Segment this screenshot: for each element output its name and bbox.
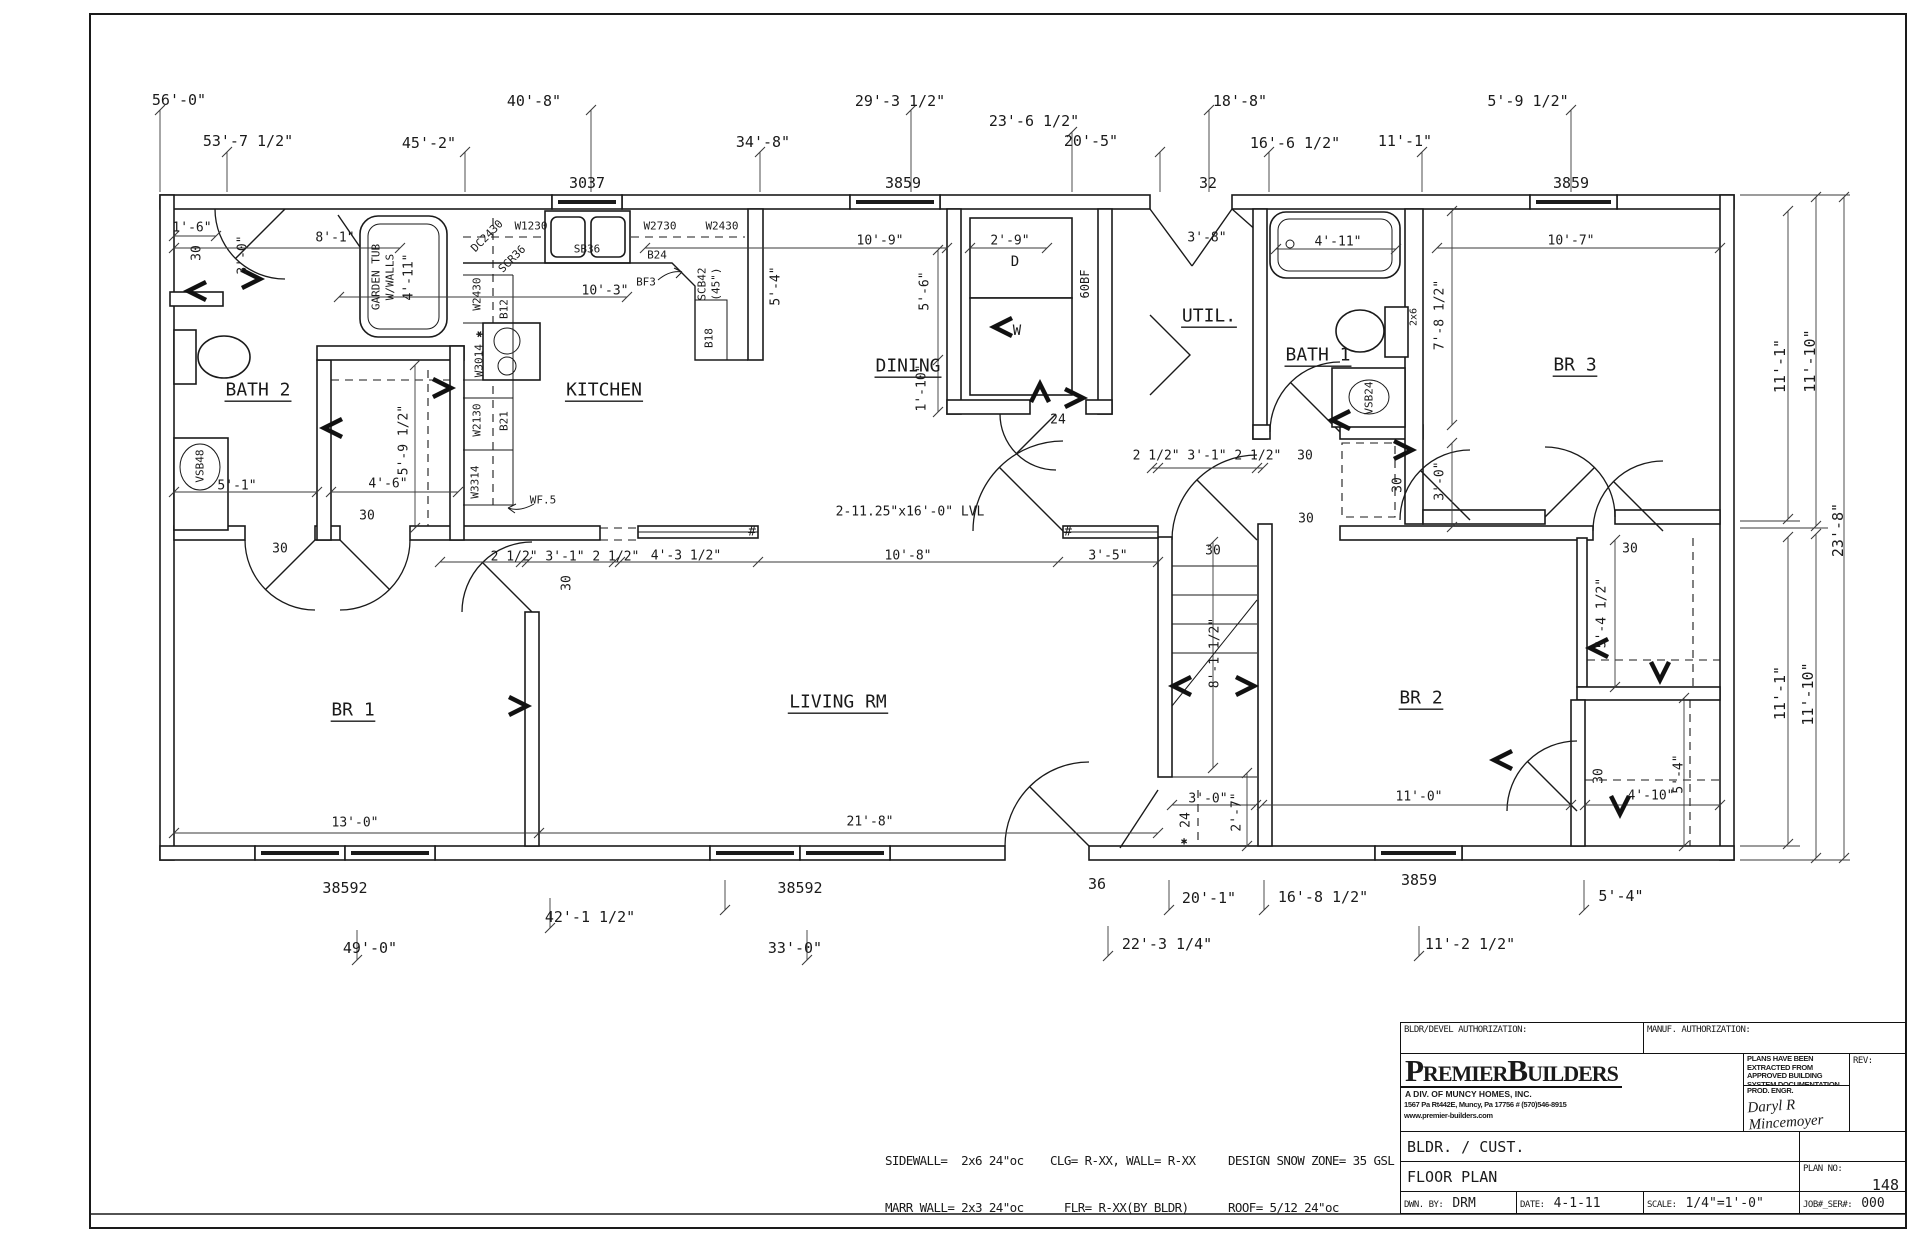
cabinet-label: BF3 — [636, 276, 656, 289]
dim-label: 5'-9 1/2" — [1487, 92, 1568, 110]
window-3859-br2 — [1375, 846, 1462, 860]
dim-label: 5'-9 1/2" — [397, 405, 412, 475]
room-label: BR 1 — [331, 700, 374, 721]
rev-cell: REV: — [1849, 1053, 1905, 1131]
dim-label: 4'-11" — [1315, 235, 1362, 250]
fixtures — [174, 211, 1408, 530]
dim-label: 3'-8" — [1187, 231, 1226, 246]
cabinet-label: SCB42 — [696, 267, 709, 300]
dim-label: 40'-8" — [507, 92, 561, 110]
plan-no-value: 148 — [1800, 1176, 1905, 1191]
dim-label: 5'-4 1/2" — [1595, 578, 1610, 648]
general-notes: SIDEWALL= 2x6 24"oc MARR WALL= 2x3 24"oc… — [885, 1122, 1024, 1242]
dim-label: 11'-10" — [1799, 662, 1817, 725]
note-line: FLR= R-XX(BY BLDR) — [1050, 1200, 1237, 1216]
dim-label: 42'-1 1/2" — [545, 908, 635, 926]
beam-hatch: # — [748, 525, 756, 540]
dwn-by-label: DWN. BY: — [1401, 1198, 1446, 1212]
dim-label: 11'-0" — [1396, 790, 1443, 805]
dim-label: 5'-4" — [1598, 887, 1643, 905]
dim-label: 34'-8" — [736, 133, 790, 151]
dim-label: 11'-1" — [1771, 339, 1789, 393]
dim-label: 2'-9" — [990, 234, 1029, 249]
general-notes: DESIGN SNOW ZONE= 35 GSL ROOF= 5/12 24"o… — [1228, 1122, 1394, 1242]
dim-label: 8'-1 1/2" — [1208, 618, 1223, 688]
company-address: 1567 Pa Rt442E, Muncy, Pa 17756 # (570)5… — [1401, 1100, 1743, 1111]
logo-builders: Builders — [1507, 1053, 1617, 1088]
appliance-label: D — [1011, 254, 1019, 270]
dim-label: 3'-5" — [1088, 549, 1127, 564]
room-label: BR 2 — [1399, 688, 1442, 709]
cabinet-label: B18 — [703, 328, 716, 348]
job-value: 000 — [1855, 1196, 1890, 1211]
dim-label: 30 — [359, 509, 375, 524]
fixture-label: VSB48 — [194, 449, 207, 482]
beam-label: 2-11.25"x16'-0" LVL — [836, 505, 985, 520]
company-website: www.premier-builders.com — [1401, 1111, 1743, 1122]
title-block: BLDR/DEVEL AUTHORIZATION: MANUF. AUTHORI… — [1400, 1022, 1906, 1214]
sheet-title-cell: FLOOR PLAN — [1401, 1161, 1799, 1191]
window-label: 3037 — [569, 174, 605, 192]
job-label: JOB#_SER#: — [1800, 1198, 1855, 1212]
window-label: 38592 — [322, 879, 367, 897]
scale-value: 1/4"=1'-0" — [1680, 1196, 1770, 1211]
window-38592-living — [710, 846, 890, 860]
job-cell: JOB#_SER#:000 — [1799, 1191, 1905, 1213]
dim-label: 5'-6" — [918, 271, 933, 310]
door-label: 36 — [1088, 875, 1106, 893]
note-line: DESIGN SNOW ZONE= 35 GSL — [1228, 1153, 1394, 1169]
window-label: 3859 — [1553, 174, 1589, 192]
dim-label: 7'-8 1/2" — [1433, 280, 1448, 350]
cabinet-label: W2430 — [471, 277, 484, 310]
door-label: 60BF — [1078, 270, 1092, 299]
dim-label: 11'-2 1/2" — [1425, 935, 1515, 953]
room-label: BATH 2 — [225, 380, 290, 401]
fixture-label: W/WALLS — [384, 254, 397, 300]
dim-label: 30 — [1592, 768, 1607, 784]
cabinet-label: W2430 — [705, 220, 738, 233]
cabinet-label: (45") — [710, 267, 723, 300]
window-3037 — [552, 195, 622, 209]
cabinet-label: SCR36 — [496, 243, 529, 276]
blank-cell — [1799, 1131, 1905, 1161]
dim-label: 11'-1" — [1771, 666, 1789, 720]
cabinet-label: DC2430 — [468, 217, 505, 254]
dim-label: 16'-6 1/2" — [1250, 134, 1340, 152]
cabinet-label: W3014 ✱ — [473, 330, 486, 377]
dim-label: 30 — [272, 542, 288, 557]
plan-no-label: PLAN NO: — [1800, 1162, 1905, 1176]
logo-cell: PremierBuilders A DIV. OF MUNCY HOMES, I… — [1401, 1053, 1743, 1131]
fixture-label: GARDEN TUB — [370, 244, 383, 311]
room-label: LIVING RM — [789, 692, 887, 713]
logo-premier: Premier — [1405, 1053, 1507, 1088]
dim-label: 2 1/2" 3'-1" 2 1/2" — [491, 550, 640, 565]
dim-label: 5'-4" — [1672, 754, 1687, 793]
dim-label: 45'-2" — [402, 134, 456, 152]
beam-hatch: # — [1064, 525, 1072, 540]
cabinet-label: W1230 — [514, 220, 547, 233]
dim-label: 10'-3" — [582, 284, 629, 299]
dim-label: 2 1/2" 3'-1" 2 1/2" — [1133, 449, 1282, 464]
wall-label: 2x6 — [1409, 308, 1420, 326]
general-notes: CLG= R-XX, WALL= R-XX FLR= R-XX(BY BLDR)… — [1050, 1122, 1237, 1242]
window-3859-dining — [850, 195, 940, 209]
cabinet-label: B24 — [647, 249, 667, 262]
note-line: SIDEWALL= 2x6 24"oc — [885, 1153, 1024, 1169]
dim-label: 30 — [1391, 477, 1406, 493]
cabinet-label: W2130 — [471, 403, 484, 436]
window-label: 3859 — [1401, 871, 1437, 889]
dwn-by-value: DRM — [1446, 1196, 1481, 1211]
dim-label: 13'-0" — [332, 816, 379, 831]
dim-label: 3'-0" — [1433, 461, 1448, 500]
bf3-arrow — [658, 268, 682, 280]
fixture-label: VSB24 — [1363, 381, 1376, 414]
dim-label: 10'-8" — [885, 549, 932, 564]
dim-label: 10'-7" — [1548, 234, 1595, 249]
room-label: KITCHEN — [566, 380, 642, 401]
dim-label: 33'-0" — [768, 939, 822, 957]
room-label: UTIL. — [1182, 306, 1236, 327]
window-38592-br1 — [255, 846, 435, 860]
cabinet-label: W3314 — [469, 465, 482, 498]
cabinet-label: W2730 — [643, 220, 676, 233]
room-label: BATH 1 — [1285, 345, 1350, 366]
dim-label: 30 — [190, 245, 205, 261]
dim-label: 4'-10" — [1628, 789, 1675, 804]
dim-label: 3'-0" — [1188, 792, 1227, 807]
room-label: BR 3 — [1553, 355, 1596, 376]
cabinet-label: B12 — [498, 299, 511, 319]
note-line: MARR WALL= 2x3 24"oc — [885, 1200, 1024, 1216]
dim-label: 30 — [1297, 449, 1313, 464]
bldr-cust-cell: BLDR. / CUST. — [1401, 1131, 1799, 1161]
note-line: CLG= R-XX, WALL= R-XX — [1050, 1153, 1237, 1169]
bldr-auth-cell: BLDR/DEVEL AUTHORIZATION: — [1401, 1023, 1643, 1053]
dim-label: 21'-8" — [847, 815, 894, 830]
door-label: 32 — [1199, 174, 1217, 192]
dim-label: 5'-4" — [769, 266, 784, 305]
dim-label: 3'-0" — [236, 235, 251, 274]
dim-label: 30 — [1298, 512, 1314, 527]
drawing-sheet: 56'-0"40'-8"29'-3 1/2"18'-8"5'-9 1/2"53'… — [0, 0, 1920, 1242]
cabinet-label: B21 — [498, 411, 511, 431]
dim-label: 29'-3 1/2" — [855, 92, 945, 110]
date-label: DATE: — [1517, 1198, 1548, 1212]
company-subtitle: A DIV. OF MUNCY HOMES, INC. — [1401, 1088, 1743, 1100]
manuf-auth-cell: MANUF. AUTHORIZATION: — [1643, 1023, 1905, 1053]
dim-label: 5'-1" — [217, 479, 256, 494]
dim-label: 24 — [1179, 812, 1194, 828]
scale-label: SCALE: — [1644, 1198, 1680, 1212]
appliance-label: W — [1013, 323, 1022, 339]
dim-label: 18'-8" — [1213, 92, 1267, 110]
dim-label: 11'-10" — [1801, 329, 1819, 392]
plans-note-cell: PLANS HAVE BEEN EXTRACTED FROM APPROVED … — [1743, 1053, 1849, 1085]
dim-label: 30 — [560, 575, 575, 591]
dim-label: 20'-5" — [1064, 132, 1118, 150]
window-label: 3859 — [885, 174, 921, 192]
dim-label: 2'-7" — [1230, 792, 1245, 831]
dim-label: 53'-7 1/2" — [203, 132, 293, 150]
dim-label: 20'-1" — [1182, 889, 1236, 907]
engineer-signature: Daryl R Mincemoyer — [1743, 1093, 1849, 1131]
door-label: 24 — [1050, 413, 1066, 428]
dim-label: 30 — [1622, 542, 1638, 557]
cabinet-label: SB36 — [574, 243, 601, 256]
date-value: 4-1-11 — [1548, 1196, 1607, 1211]
dim-label: 4'-11" — [402, 254, 417, 301]
scale-cell: SCALE:1/4"=1'-0" — [1643, 1191, 1799, 1213]
window-3859-br3 — [1530, 195, 1617, 209]
date-cell: DATE:4-1-11 — [1516, 1191, 1643, 1213]
cabinet-label: WF.5 — [530, 494, 557, 507]
dim-label: 1'-6" — [172, 221, 211, 236]
symbol: ✱ — [1181, 835, 1188, 848]
toilet-bath2 — [174, 330, 250, 384]
dim-label: 23'-8" — [1829, 503, 1847, 557]
note-line: ROOF= 5/12 24"oc — [1228, 1200, 1394, 1216]
dim-label: 8'-1" — [315, 231, 354, 246]
dim-label: 4'-6" — [368, 477, 407, 492]
prod-engr-cell: PROD. ENGR. Daryl R Mincemoyer DARRYL R … — [1743, 1085, 1849, 1131]
dim-label: 22'-3 1/4" — [1122, 935, 1212, 953]
dim-label: 30 — [1205, 544, 1221, 559]
dim-label: 23'-6 1/2" — [989, 112, 1079, 130]
dim-label: 16'-8 1/2" — [1278, 888, 1368, 906]
dim-label: 11'-1" — [1378, 132, 1432, 150]
dwn-by-cell: DWN. BY:DRM — [1401, 1191, 1516, 1213]
range — [483, 323, 540, 380]
dim-label: 4'-3 1/2" — [651, 549, 721, 564]
dim-label: 49'-0" — [343, 939, 397, 957]
dim-label: 1'-10" — [915, 365, 930, 412]
room-label: DINING — [875, 356, 940, 377]
window-label: 38592 — [777, 879, 822, 897]
plan-no-cell: PLAN NO: 148 — [1799, 1161, 1905, 1191]
dim-label: 56'-0" — [152, 91, 206, 109]
dim-label: 10'-9" — [857, 234, 904, 249]
